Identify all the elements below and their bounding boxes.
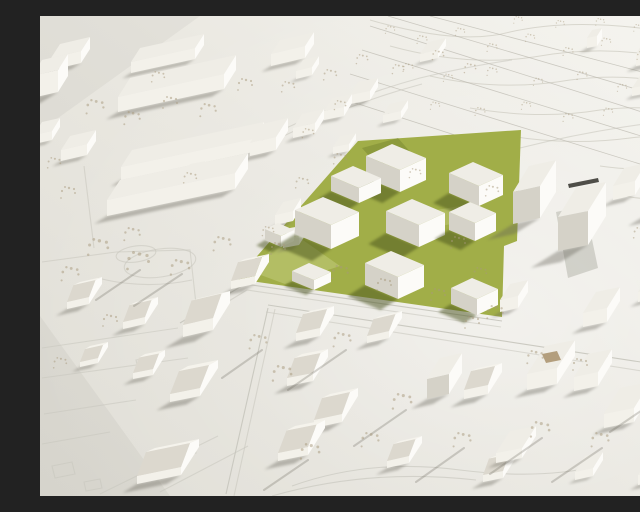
- architectural-model-photo: [40, 16, 640, 496]
- model-photo-canvas: [40, 16, 640, 496]
